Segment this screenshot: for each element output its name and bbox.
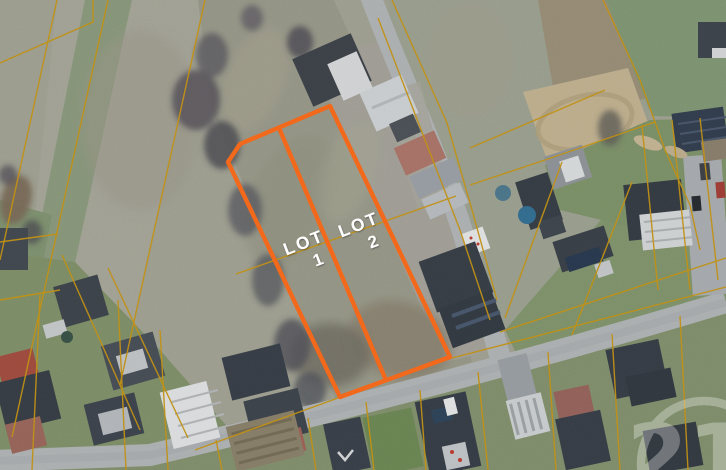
aerial-photo: LOT 1 LOT 2 21 bbox=[0, 0, 726, 470]
watermark-text: 21 bbox=[627, 405, 726, 470]
century21-watermark: 21 bbox=[627, 401, 726, 470]
photo-grain bbox=[0, 0, 726, 470]
aerial-parcel-map: LOT 1 LOT 2 21 bbox=[0, 0, 726, 470]
